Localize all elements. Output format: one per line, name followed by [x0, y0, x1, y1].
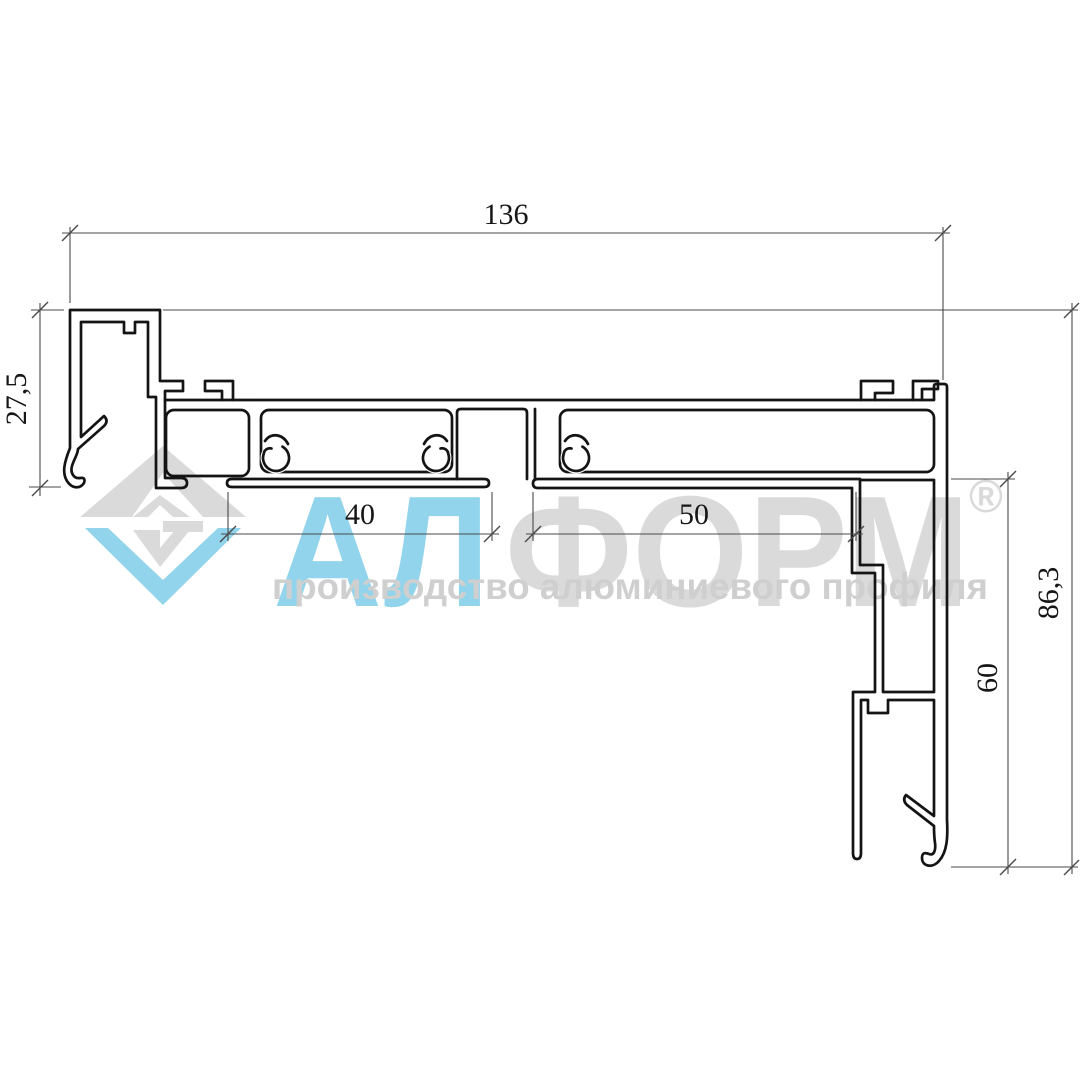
profile-drawing-svg: АЛ ФОРМ ® производство алюминиевого проф…: [0, 0, 1080, 1080]
dim-label-total-width: 136: [484, 198, 529, 231]
dim-label-total-height: 86,3: [1032, 567, 1065, 620]
clip-left: [205, 381, 233, 400]
registered-trademark-icon: ®: [969, 470, 1003, 522]
clip-right-a: [861, 381, 893, 400]
screw-port-mask: [421, 443, 452, 474]
logo-chevron-down-blue: [85, 528, 241, 605]
dim-label-inner-height: 60: [971, 663, 1004, 693]
chamber-c-cavity: [560, 410, 934, 472]
logo-diamond: [80, 446, 246, 605]
watermark-tagline: производство алюминиевого профиля: [272, 566, 988, 607]
watermark-brand-prefix: АЛ: [273, 464, 490, 640]
technical-drawing-canvas: АЛ ФОРМ ® производство алюминиевого проф…: [0, 0, 1080, 1080]
dim-label-40: 40: [345, 498, 375, 531]
watermark-brand-suffix: ФОРМ: [505, 464, 970, 640]
screw-port-mask: [261, 443, 292, 474]
dim-label-cap-height: 27,5: [0, 373, 33, 426]
dim-27-5: [29, 302, 64, 496]
dim-label-50: 50: [679, 498, 709, 531]
dim-136: [62, 225, 951, 380]
screw-port-mask: [561, 443, 592, 474]
